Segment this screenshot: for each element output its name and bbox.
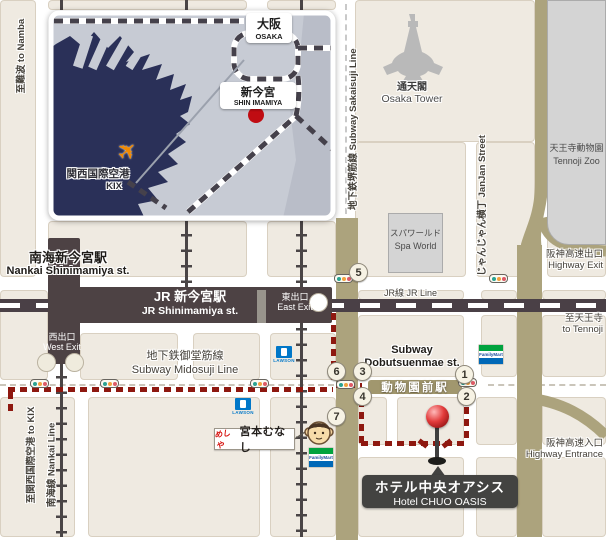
to-kix-label: 至関西国際空港 to KIX	[23, 405, 37, 505]
dobutsuenmae-en1: Subway	[352, 344, 472, 357]
exit-number: 2	[463, 391, 469, 403]
osaka-jp: 大阪	[246, 15, 292, 32]
lawson-text: LAWSON	[272, 358, 296, 363]
hwy-exit-en: Highway Exit	[500, 261, 603, 272]
kix-en: KIX	[96, 182, 132, 193]
osaka-label: 大阪 OSAKA	[246, 13, 292, 43]
familymart-logo: FamilyMart	[308, 447, 334, 468]
west-exit-en: West Exit	[36, 342, 88, 352]
city-block	[476, 397, 517, 445]
nankai-railway	[56, 0, 67, 10]
tower-jp: 通天閣	[384, 82, 440, 94]
west-exit-jp: 西出口	[38, 332, 86, 342]
inset-overview-map: 大阪 OSAKA 新今宮 SHIN IMAMIYA ✈ 関西国際空港 KIX	[48, 10, 336, 221]
exit-number: 1	[461, 369, 467, 381]
city-block	[355, 0, 535, 142]
traffic-light-icon	[250, 379, 269, 388]
exit-number: 3	[359, 366, 365, 378]
lawson-milkcan-icon	[276, 346, 292, 358]
shin-imamiya-marker	[248, 107, 264, 123]
munashi-mascot-icon	[303, 416, 335, 450]
shin-imamiya-label: 新今宮 SHIN IMAMIYA	[220, 82, 296, 109]
lawson-logo: LAWSON	[231, 398, 255, 415]
road-centerline	[488, 384, 606, 386]
hotel-name-jp: ホテル中央オアシス	[375, 476, 505, 496]
familymart-blue-bar	[309, 461, 333, 467]
road-centerline	[0, 384, 334, 386]
familymart-text: FamilyMart	[479, 351, 503, 358]
familymart-logo: FamilyMart	[478, 344, 504, 365]
janjan-street-label: じゃんじゃん横丁 JanJan Street	[474, 140, 488, 276]
hwy-entrance-en: Highway Entrance	[480, 450, 603, 461]
highway-road	[517, 245, 542, 537]
nankai-line-label: 南海線 Nankai Line	[44, 418, 58, 513]
exit-circle-4: 4	[353, 387, 372, 406]
dobutsuenmae-jp: 動物園前駅	[381, 379, 449, 395]
railway	[296, 0, 307, 10]
traffic-light-icon	[336, 380, 355, 389]
to-namba-label: 至難波 to Namba	[13, 11, 27, 101]
kix-jp: 関西国際空港	[50, 168, 146, 180]
zoo-en: Tennoji Zoo	[548, 156, 605, 166]
exit-number: 6	[333, 366, 339, 378]
jr-line-label: JR線 JR Line	[384, 288, 454, 298]
shin-imamiya-jp: 新今宮	[220, 84, 296, 100]
nankai-station-jp: 南海新今宮駅	[8, 251, 128, 266]
hotel-pin-base	[428, 457, 446, 465]
exit-circle-3: 3	[353, 362, 372, 381]
west-exit-circle	[65, 353, 84, 372]
route-segment	[8, 392, 13, 414]
exit-circle-2: 2	[457, 387, 476, 406]
spa-en: Spa World	[386, 241, 445, 251]
lawson-text: LAWSON	[231, 410, 255, 415]
city-block	[48, 0, 247, 10]
familymart-blue-bar	[479, 358, 503, 364]
railway	[296, 221, 307, 297]
west-exit-circle	[37, 353, 56, 372]
city-block	[88, 397, 260, 537]
lawson-milkcan-icon	[235, 398, 251, 410]
hotel-name-en: Hotel CHUO OASIS	[393, 496, 486, 508]
to-tennoji-en: to Tennoji	[540, 325, 603, 336]
hotel-pin-stem	[435, 425, 439, 458]
zoo-jp: 天王寺動物園	[548, 143, 605, 153]
exit-number: 4	[359, 391, 365, 403]
route-segment	[8, 387, 333, 392]
jr-station-en: JR Shinimamiya st.	[80, 305, 300, 317]
exit-number: 5	[355, 267, 361, 279]
tennoji-zoo-area	[547, 0, 606, 245]
railway	[181, 221, 192, 289]
railway	[181, 0, 192, 10]
midosuji-en: Subway Midosuji Line	[100, 364, 270, 377]
lawson-logo: LAWSON	[272, 346, 296, 363]
osaka-en: OSAKA	[246, 32, 292, 41]
exit-circle-5: 5	[349, 263, 368, 282]
nankai-station-en: Nankai Shinimamiya st.	[0, 265, 144, 278]
access-map: 大阪 OSAKA 新今宮 SHIN IMAMIYA ✈ 関西国際空港 KIX 至…	[0, 0, 606, 540]
hotel-pin-icon	[426, 405, 449, 428]
traffic-light-icon	[30, 379, 49, 388]
traffic-light-icon	[489, 274, 508, 283]
sakaisuji-line-label: 地下鉄堺筋線 Subway Sakaisuji Line	[345, 50, 359, 210]
jr-station-jp: JR 新今宮駅	[80, 290, 300, 305]
dobutsuenmae-station-bar: 動物園前駅	[368, 380, 462, 394]
spa-jp: スパワールド	[386, 229, 445, 239]
shin-imamiya-en: SHIN IMAMIYA	[220, 100, 296, 107]
city-block	[542, 457, 606, 537]
exit-circle-6: 6	[327, 362, 346, 381]
familymart-text: FamilyMart	[309, 454, 333, 461]
hotel-label: ホテル中央オアシス Hotel CHUO OASIS	[362, 475, 518, 508]
munashi-logo: めしや	[214, 427, 239, 452]
midosuji-jp: 地下鉄御堂筋線	[110, 350, 260, 363]
east-exit-en: East Exit	[271, 302, 319, 312]
traffic-light-icon	[100, 379, 119, 388]
munashi-name: 宮本むなし	[240, 423, 294, 455]
tower-en: Osaka Tower	[372, 93, 452, 105]
miyamoto-munashi-label: めしや 宮本むなし	[214, 428, 295, 450]
exit-circle-1: 1	[455, 365, 474, 384]
east-exit-jp: 東出口	[275, 292, 315, 302]
